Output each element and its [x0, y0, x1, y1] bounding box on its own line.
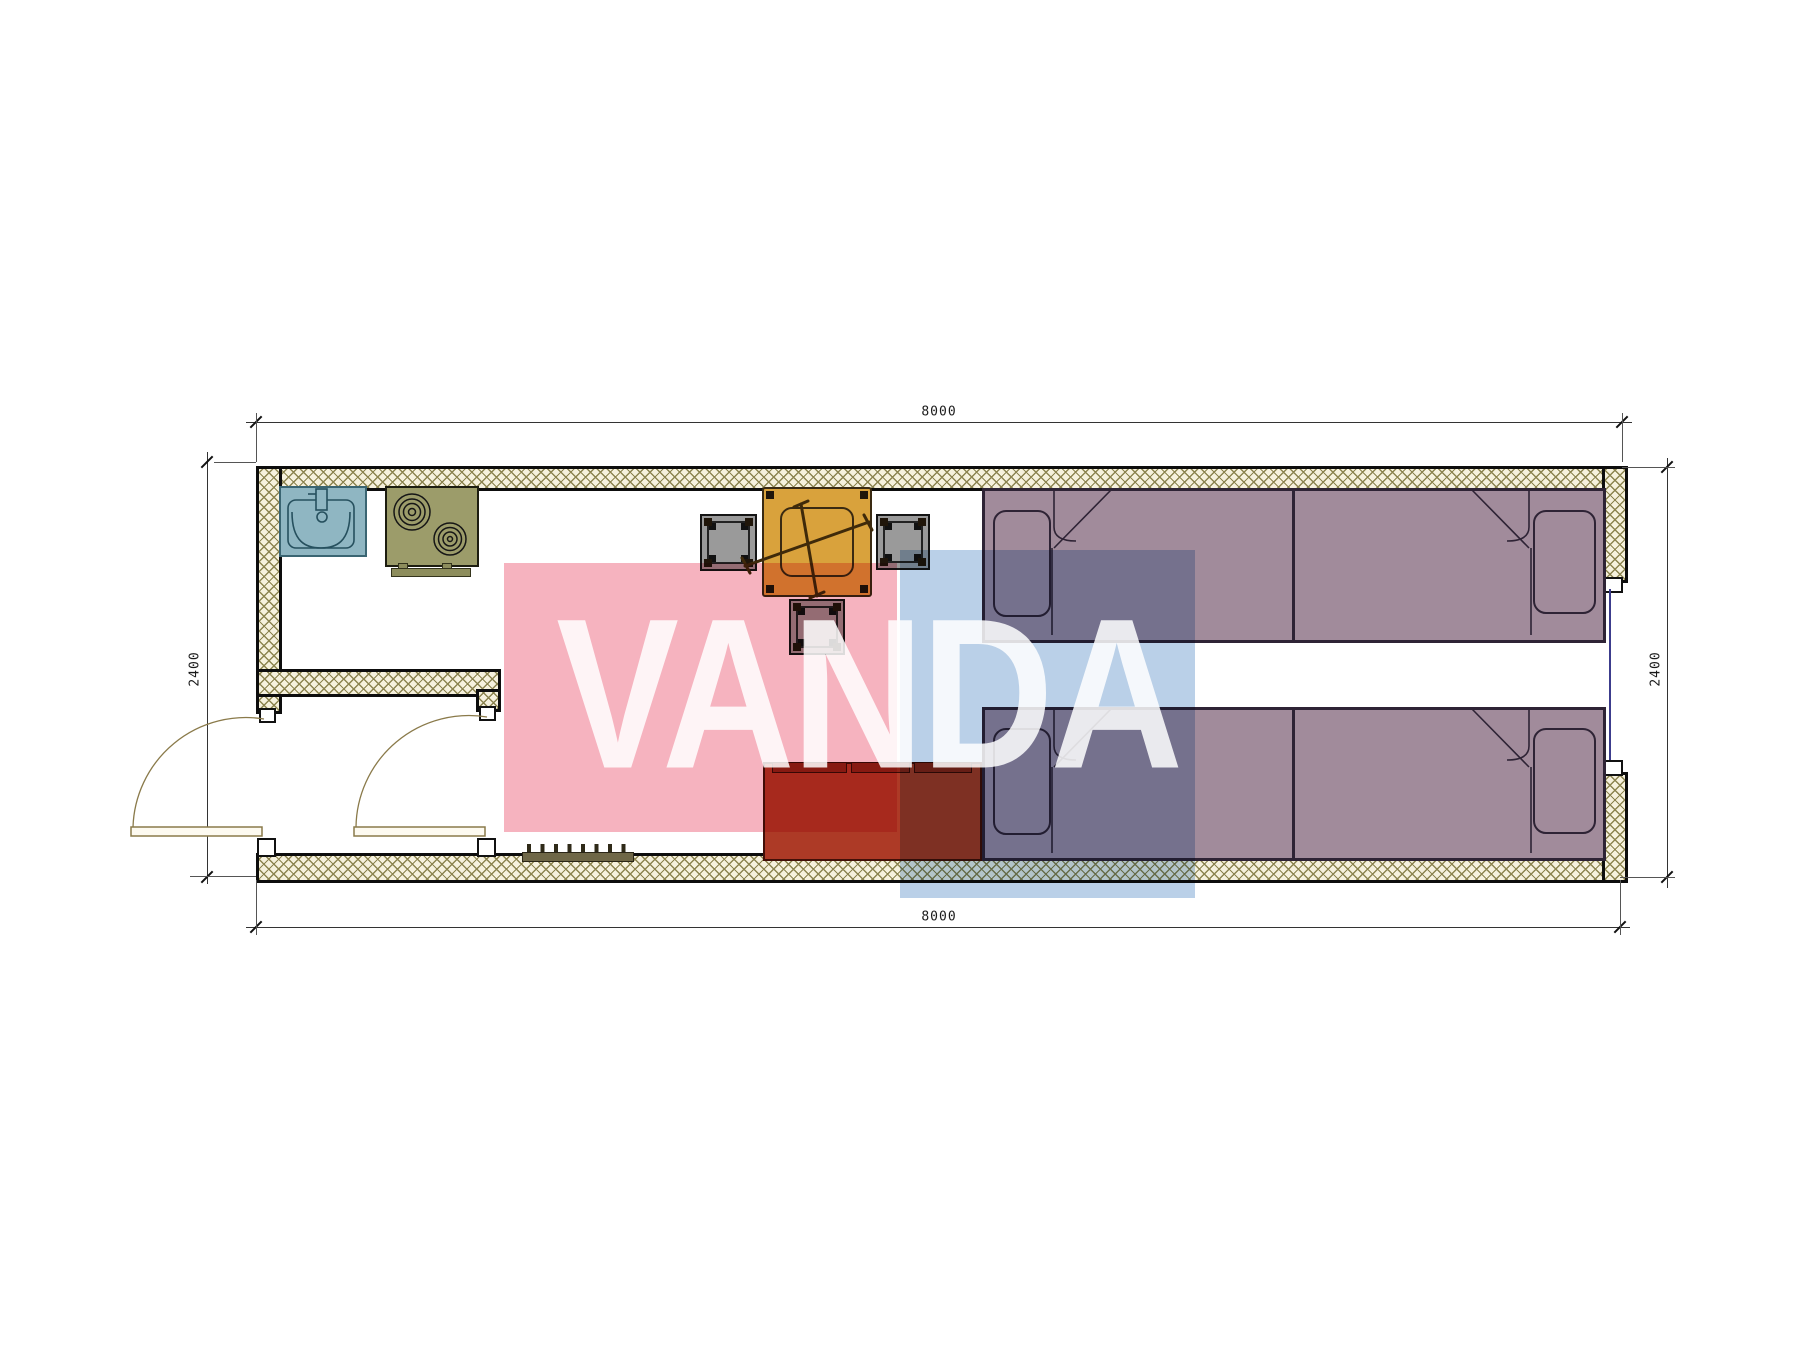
- jamb-window-top: [1603, 577, 1623, 593]
- jamb-left-wall: [259, 708, 276, 723]
- watermark-logo-text: VANDA: [556, 587, 1180, 801]
- ext-line: [214, 462, 256, 463]
- coat-rack-icon: [522, 852, 634, 862]
- sink-icon: [279, 486, 367, 557]
- window-icon: [1609, 589, 1611, 760]
- jamb-partition: [479, 706, 496, 721]
- exterior-door-icon: [131, 718, 264, 836]
- jamb-bottom-wall-mid: [477, 838, 496, 857]
- dim-line-top: [246, 422, 1632, 423]
- dim-line-bottom: [246, 927, 1630, 928]
- interior-door-icon: [354, 716, 487, 836]
- stool-seat: [707, 521, 750, 564]
- jamb-window-bottom: [1603, 760, 1623, 776]
- ext-line: [1620, 880, 1621, 935]
- floor-plan-canvas: 8000 8000 2400 2400: [0, 0, 1800, 1350]
- wall-partition: [256, 669, 501, 697]
- pillow-icon: [1533, 728, 1596, 834]
- dim-text-left: 2400: [188, 651, 203, 686]
- jamb-bottom-wall-left: [257, 838, 276, 857]
- coat-rack-hooks: [527, 844, 627, 852]
- stove-icon: [385, 486, 479, 567]
- dim-line-right: [1667, 458, 1668, 888]
- dim-line-left: [207, 452, 208, 884]
- ext-line: [190, 876, 256, 877]
- ext-line: [256, 413, 257, 462]
- stove-base: [391, 568, 471, 577]
- ext-line: [256, 880, 257, 935]
- pillow-icon: [1533, 510, 1596, 614]
- dim-text-top: 8000: [921, 405, 956, 420]
- dim-text-right: 2400: [1649, 651, 1664, 686]
- ext-line: [1622, 413, 1623, 462]
- ext-line: [1622, 467, 1675, 468]
- dim-text-bottom: 8000: [921, 910, 956, 925]
- ext-line: [1620, 877, 1675, 878]
